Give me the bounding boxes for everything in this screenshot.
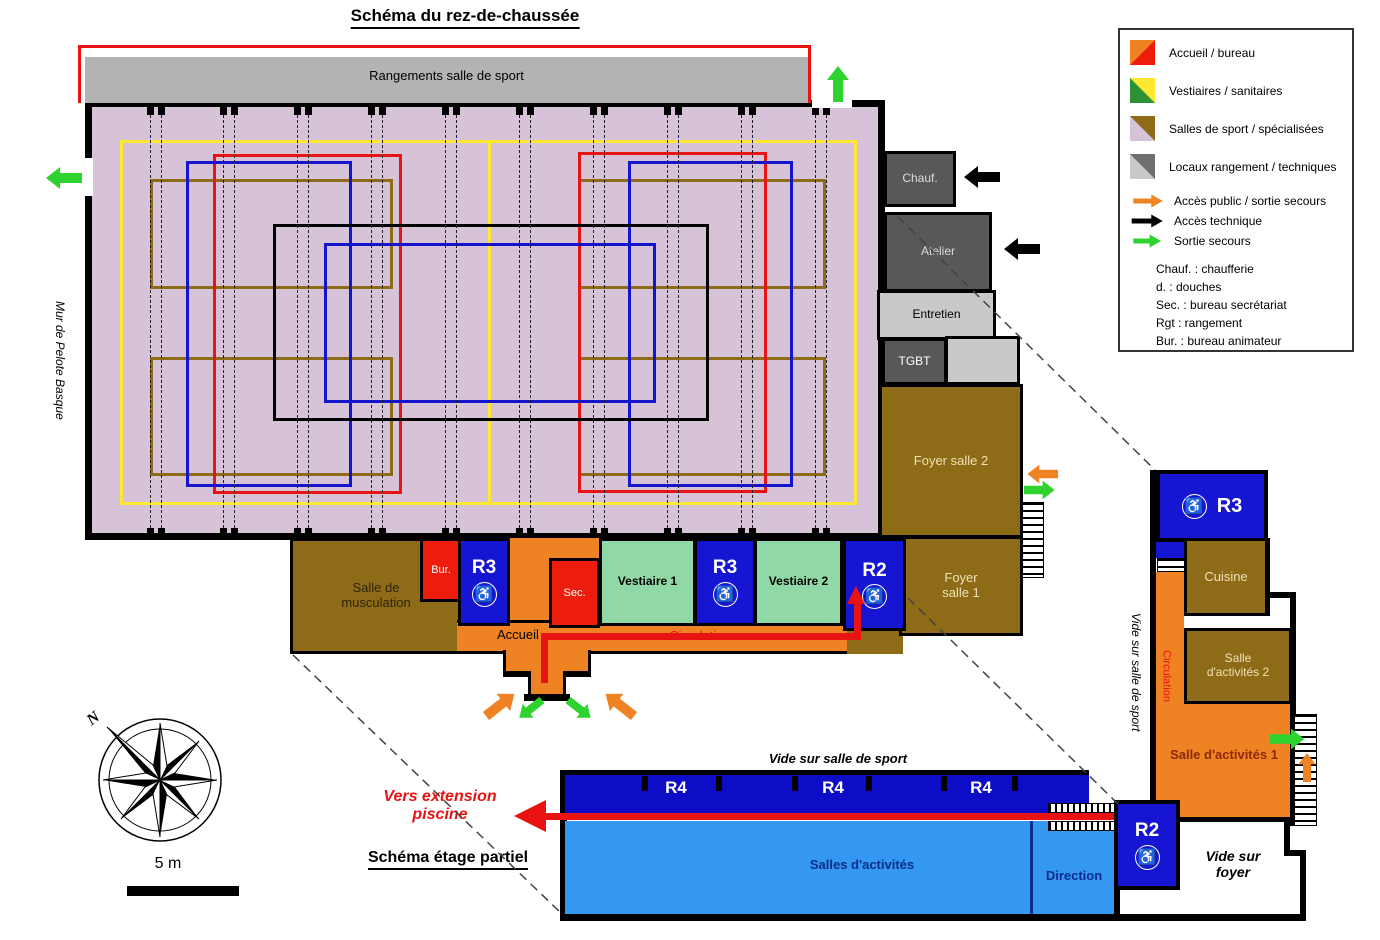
legend-item: Accès public / sortie secours [1130, 192, 1344, 210]
room-salles-activites [565, 821, 1032, 914]
divider-line [308, 110, 309, 533]
wheelchair-icon: ♿ [1135, 845, 1160, 870]
emergency-exit-arrow-icon [1130, 232, 1166, 250]
divider-line [150, 110, 151, 533]
divider-line [593, 110, 594, 533]
divider-line [371, 110, 372, 533]
room-entretien: Entretien [877, 290, 996, 340]
north-label: N [84, 708, 104, 730]
abbreviation: d. : douches [1156, 278, 1344, 296]
divider-line [604, 110, 605, 533]
r4-tick [716, 776, 722, 791]
room-secretariat: Sec. [549, 558, 600, 628]
divider-line [297, 110, 298, 533]
technical-arrow-atelier [1004, 238, 1040, 260]
legend-item: Vestiaires / sanitaires [1130, 78, 1344, 103]
divider-line [741, 110, 742, 533]
divider-line [223, 110, 224, 533]
direction-label: Direction [1046, 869, 1102, 884]
upper-path [530, 813, 1124, 820]
r4-tick [1012, 776, 1018, 791]
salles-activites-label: Salles d'activités [802, 858, 922, 873]
wing-circulation-label: Circulation [1160, 638, 1173, 714]
upper-wall-south [560, 914, 1306, 921]
room-tgbt: TGBT [882, 338, 947, 385]
r3-upper-ext [1156, 542, 1186, 558]
r4-tick [941, 776, 947, 791]
divider-line [667, 110, 668, 533]
divider-line [382, 110, 383, 533]
extension-note: Vers extension piscine [355, 788, 525, 825]
r4-label: R4 [970, 778, 992, 798]
room-cuisine: Cuisine [1184, 538, 1270, 616]
abbreviation: Bur. : bureau animateur [1156, 332, 1344, 350]
divider-line [678, 110, 679, 533]
footbridge-hatch [1048, 803, 1122, 813]
room-r3-vestiaires: R3 ♿ [694, 538, 756, 626]
upper-floor-title: Schéma étage partiel [368, 849, 528, 870]
legend-abbreviations: Chauf. : chaufferie d. : douches Sec. : … [1130, 260, 1344, 350]
room-salle-activites-2: Salle d'activités 2 [1184, 628, 1292, 704]
footbridge-hatch [1048, 821, 1122, 831]
wing-wall-southeast [1300, 850, 1306, 920]
room-bureau-animateur: Bur. [420, 538, 462, 602]
accueil-label: Accueil [497, 628, 539, 643]
legend-swatch-vestiaires [1130, 78, 1155, 103]
direction-divider [1030, 821, 1033, 914]
exit-gap-north [812, 100, 852, 108]
wheelchair-icon: ♿ [713, 582, 738, 607]
exit-gap-west [84, 158, 93, 196]
public-access-arrow-icon [1130, 192, 1166, 210]
divider-line [519, 110, 520, 533]
exit-arrow-north [827, 66, 849, 102]
compass-rose [99, 719, 221, 841]
technical-arrow-chaufferie [964, 166, 1000, 188]
r4-label: R4 [822, 778, 844, 798]
room-r2-upper: R2 ♿ [1114, 800, 1180, 890]
divider-line [752, 110, 753, 533]
projection-line [293, 655, 562, 914]
legend-item: Accueil / bureau [1130, 40, 1344, 65]
scale-bar [127, 886, 239, 896]
abbreviation: Chauf. : chaufferie [1156, 260, 1344, 278]
legend-swatch-locaux [1130, 154, 1155, 179]
visitor-path [854, 600, 861, 640]
stairs-landing [1157, 558, 1185, 572]
room-vestiaire-2: Vestiaire 2 [754, 538, 843, 626]
salle-activites-1-label: Salle d'activités 1 [1159, 748, 1289, 763]
legend: Accueil / bureau Vestiaires / sanitaires… [1118, 28, 1354, 352]
floor-plan-canvas: Schéma du rez-de-chaussée Schéma étage p… [0, 0, 1380, 940]
entrance-arrow-left [479, 685, 521, 725]
r4-tick [642, 776, 648, 791]
r4-tick [866, 776, 872, 791]
abbreviation: Sec. : bureau secrétariat [1156, 296, 1344, 314]
upper-wall-inner [1114, 886, 1120, 920]
exit-arrow-foyer [1024, 481, 1055, 500]
void-side-label: Vide sur salle de sport [1128, 596, 1142, 748]
wheelchair-icon: ♿ [862, 584, 887, 609]
entrance-arrow-right [599, 685, 641, 725]
stairs-wing [1294, 714, 1317, 826]
wheelchair-icon: ♿ [472, 582, 497, 607]
room-vestiaire-1: Vestiaire 1 [599, 538, 696, 626]
wheelchair-icon: ♿ [1182, 494, 1207, 519]
scale-label: 5 m [155, 855, 182, 873]
visitor-path [541, 633, 548, 683]
room-r2-ground: R2 ♿ [843, 538, 906, 631]
void-over-foyer-label: Vide sur foyer [1198, 848, 1268, 880]
stairs-foyer [1022, 502, 1044, 578]
r4-tick [792, 776, 798, 791]
divider-line [445, 110, 446, 533]
room-technical-unlabeled [945, 336, 1020, 385]
r4-label: R4 [665, 778, 687, 798]
divider-line [456, 110, 457, 533]
legend-item: Sortie secours [1130, 232, 1344, 250]
room-atelier: Atelier [884, 212, 992, 292]
legend-swatch-accueil [1130, 40, 1155, 65]
void-over-hall-label: Vide sur salle de sport [769, 752, 907, 767]
divider-line [234, 110, 235, 533]
court-blue-center [324, 243, 656, 403]
entrance-threshold [524, 694, 570, 701]
legend-item: Locaux rangement / techniques [1130, 154, 1344, 179]
room-foyer-salle-1: Foyer salle 1 [899, 536, 1023, 636]
room-chaufferie: Chauf. [884, 151, 956, 207]
visitor-path [543, 633, 861, 640]
room-r3-upper: ♿ R3 [1156, 470, 1268, 542]
abbreviation: Rgt : rangement [1156, 314, 1344, 332]
room-r3-hall: R3 ♿ [458, 538, 510, 626]
storage-red-outline [78, 45, 811, 103]
page-title: Schéma du rez-de-chaussée [351, 6, 580, 29]
divider-line [815, 110, 816, 533]
technical-access-arrow-icon [1130, 212, 1166, 230]
room-foyer-salle-2: Foyer salle 2 [879, 384, 1023, 538]
legend-swatch-salles [1130, 116, 1155, 141]
legend-item: Accès technique [1130, 212, 1344, 230]
divider-line [161, 110, 162, 533]
legend-item: Salles de sport / spécialisées [1130, 116, 1344, 141]
exit-arrow-west [46, 167, 82, 189]
vestibule-wall [563, 671, 591, 677]
divider-line [826, 110, 827, 533]
pelote-wall-label: Mur de Pelote Basque [52, 285, 66, 435]
public-access-arrow-foyer [1027, 465, 1058, 484]
divider-line [530, 110, 531, 533]
vestibule-wall [503, 671, 531, 677]
